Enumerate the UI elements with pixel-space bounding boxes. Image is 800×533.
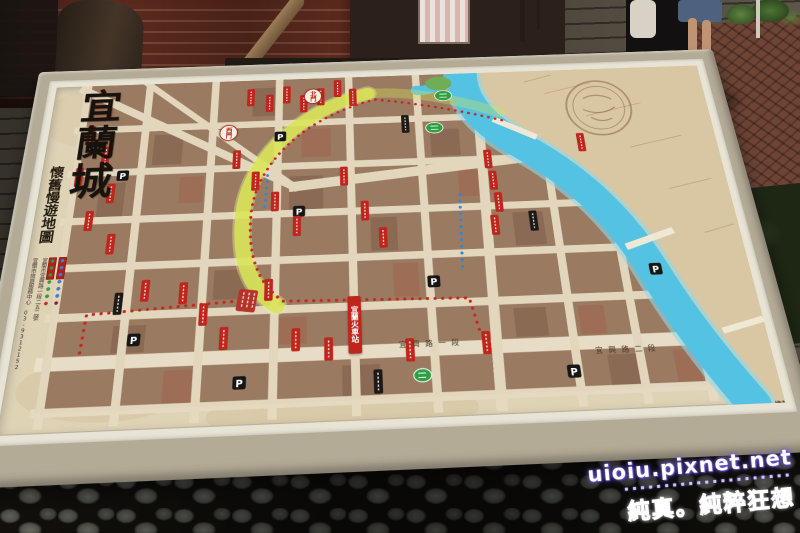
person-denim-shorts <box>678 0 722 22</box>
green-foliage <box>726 0 800 36</box>
person-bag <box>630 0 656 38</box>
train-station-label: 宜蘭火車站 <box>347 296 362 354</box>
pink-door <box>418 0 470 44</box>
pole <box>520 0 525 42</box>
photo-scene: P <box>0 0 800 533</box>
pole <box>537 0 540 30</box>
map-information-board: P <box>0 49 800 489</box>
board-mat: P <box>0 59 798 447</box>
credit-cartographer: 編繪:光大巷工作室 <box>774 397 786 411</box>
white-pole <box>756 0 760 38</box>
nostalgia-map: P <box>0 65 785 436</box>
